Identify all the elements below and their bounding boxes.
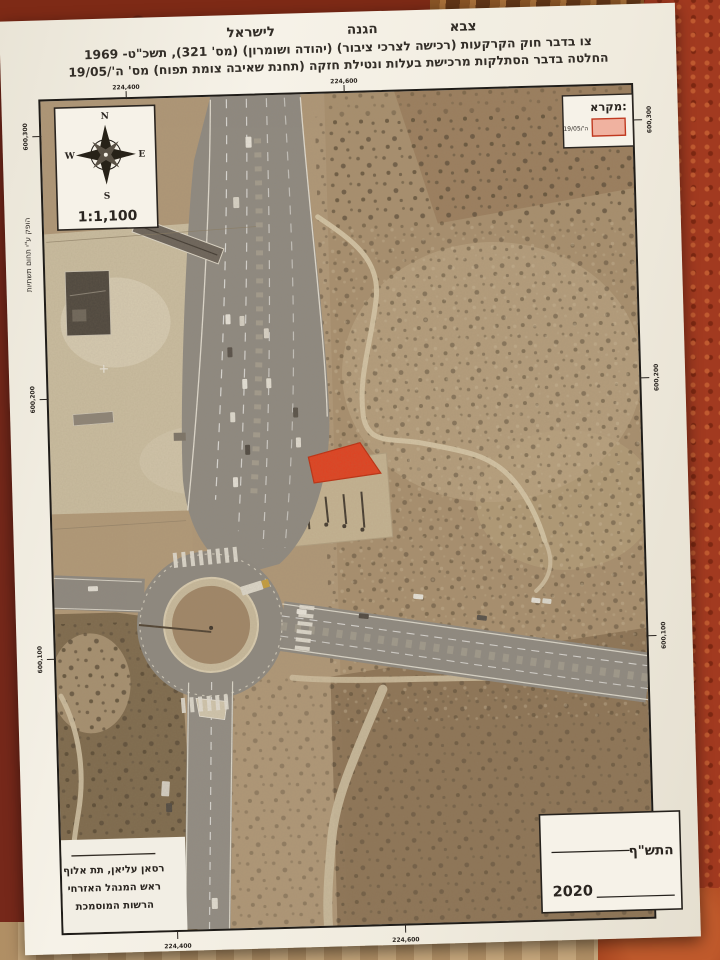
- idf-word-israel: לישראל: [226, 24, 275, 41]
- paper-document: צבא הגנה לישראל צו בדבר חוק הקרקעות (רכי…: [0, 3, 701, 956]
- coord-right-1: 600,200: [653, 364, 661, 392]
- date-box: התש"ף 2020: [539, 811, 682, 913]
- coord-top-1: 224,600: [330, 78, 358, 86]
- signature-block: רסאן עליאן, תת אלוף ראש המנהל האזרחי הרש…: [61, 837, 188, 933]
- coord-left-2: 600,100: [37, 646, 45, 674]
- produced-by-note: הופק ע"י תחום תשתיות: [23, 217, 34, 292]
- signatory-authority: הרשות המוסמכת: [76, 900, 155, 913]
- compass-w-label: W: [64, 152, 76, 162]
- idf-word-army: צבא: [449, 18, 476, 35]
- legend-box: מקרא: ה'/19/05: [562, 94, 633, 148]
- legend-title: מקרא:: [590, 99, 627, 114]
- legend-item-label: ה'/19/05: [563, 125, 588, 133]
- coord-top-0: 224,400: [112, 84, 140, 92]
- coord-left-0: 600,300: [22, 123, 30, 151]
- idf-word-defense: הגנה: [347, 21, 378, 38]
- coord-left-1: 600,200: [29, 386, 37, 414]
- compass-n-label: N: [101, 112, 110, 122]
- coord-bottom-1: 224,600: [392, 936, 420, 944]
- scale-label: 1:1,100: [78, 208, 138, 226]
- compass-scale-box: N E S W 1:1,100: [55, 105, 158, 230]
- hebrew-year-label: התש"ף: [628, 842, 673, 859]
- compass-s-label: S: [104, 192, 111, 202]
- gregorian-year-label: 2020: [552, 883, 593, 900]
- coord-right-2: 600,100: [660, 622, 668, 650]
- legend-swatch: [592, 118, 625, 136]
- coord-bottom-0: 224,400: [164, 943, 192, 951]
- map-block: N E S W 1:1,100 מקרא: ה'/19/05 התש"ף 202…: [14, 67, 688, 955]
- compass-e-label: E: [138, 150, 145, 160]
- aerial-map: N E S W 1:1,100 מקרא: ה'/19/05 התש"ף 202…: [14, 67, 688, 955]
- coord-right-0: 600,300: [646, 106, 654, 134]
